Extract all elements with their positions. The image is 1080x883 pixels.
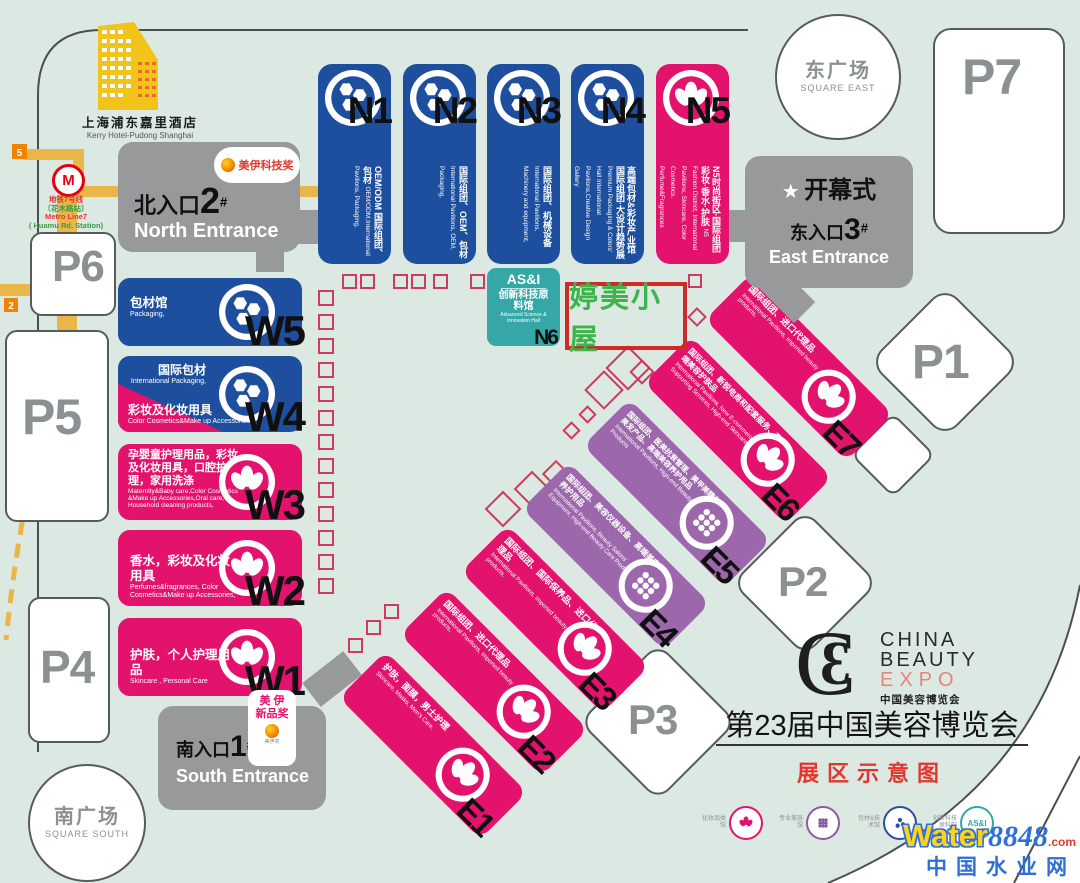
hall-w5-label: W5 [245, 310, 304, 352]
hall-n4-text: 高端包材&彩妆产业馆 国际组团·大设计趋势展 Premium Packaging… [570, 166, 636, 260]
tingmei-xiaowu-text: 婷美小屋 [569, 274, 683, 358]
expo-title: 第23届中国美容博览会 [716, 702, 1028, 744]
hall-n4-label: N4 [601, 92, 644, 129]
meiyi-tech-award-badge: 美伊科技奖 [214, 147, 300, 183]
metro-logo-letter: M [62, 172, 75, 189]
cbe-logo-wordmark: CHINA BEAUTY EXPO 中国美容博览会 [880, 630, 978, 710]
hall-n2-label: N2 [433, 92, 476, 129]
booth-marker [360, 274, 375, 289]
hall-w3: 孕婴童护理用品，彩妆及化妆用具，口腔护理，家用洗涤Maternity&Baby … [118, 444, 302, 520]
booth-marker [688, 274, 702, 288]
award-new-line1: 美 伊 [248, 695, 296, 708]
square-east-zh: 东广场 [777, 54, 899, 83]
hall-n2-text: 国际组团、OEM、包材 International Pavilions, OEM… [435, 166, 468, 260]
south-entrance-en: South Entrance [176, 766, 309, 787]
hall-w3-label: W3 [245, 484, 304, 526]
hall-n1-text: OEM/ODM 国际组团、包材 OEM/ODM,International Pa… [350, 166, 383, 260]
square-south: 南广场 SQUARE SOUTH [28, 764, 146, 882]
watermark-line2: 中国水业网 [903, 857, 1076, 879]
hall-n5: N5 N5时尚街区·国际组团 彩妆·香水·护肤 N5 Fashion Distr… [656, 64, 729, 264]
east-entrance-number: 3 [844, 213, 861, 246]
booth-marker [433, 274, 448, 289]
watermark-8848: 8848 [988, 820, 1048, 853]
category-cosmetics-label: 化妆品类馆 [700, 816, 726, 830]
svg-text:5: 5 [17, 148, 23, 159]
booth-marker [318, 338, 334, 354]
hall-n3-label: N3 [517, 92, 560, 129]
hall-n4: N4 高端包材&彩妆产业馆 国际组团·大设计趋势展 Premium Packag… [571, 64, 644, 264]
category-cosmetics: 化妆品类馆 [700, 806, 763, 840]
hall-w4: 国际包材International Packaging, 彩妆及化妆用具Colo… [118, 356, 302, 432]
booth-marker [342, 274, 357, 289]
title-divider [716, 744, 1028, 746]
booth-marker [318, 530, 334, 546]
map-subtitle: 展区示意图 [716, 756, 1028, 788]
booth-marker [393, 274, 408, 289]
meiyi-award-icon [265, 724, 279, 738]
north-entrance-hash: # [220, 195, 227, 210]
hall-n5-label: N5 [686, 92, 729, 129]
booth-marker [318, 578, 334, 594]
tingmei-xiaowu-highlight: 婷美小屋 [565, 282, 687, 350]
meiyi-new-product-award-badge: 美 伊 新品奖 美伊奖 [248, 690, 296, 766]
cbe-word-expo: EXPO [880, 670, 978, 690]
hall-w1: 护肤，个人护理用品Skincare , Personal Care W1 [118, 618, 302, 696]
opening-ceremony: ★ 开幕式 [745, 170, 913, 205]
east-entrance-zh: 东入口3# [745, 213, 913, 247]
dots-icon [806, 806, 840, 840]
watermark-line1: Water8848.com [903, 821, 1076, 857]
meiyi-tech-award-label: 美伊科技奖 [239, 157, 294, 173]
east-entrance-zh-text: 东入口 [790, 223, 844, 243]
south-entrance: 南入口1# South Entrance [158, 706, 326, 810]
cbe-word-beauty: BEAUTY [880, 650, 978, 670]
square-south-en: SQUARE SOUTH [30, 829, 144, 839]
watermark-water: Water [903, 818, 988, 853]
booth-marker [318, 506, 334, 522]
booth-marker [318, 434, 334, 450]
hall-n3-text: 国际组团、机械设备 International Pavilions, Machi… [519, 166, 552, 260]
category-professional-beauty: 专业美容馆 [777, 806, 840, 840]
parking-p2-label: P2 [778, 558, 827, 606]
square-east-en: SQUARE EAST [777, 83, 899, 93]
metro-station-en: ( Huamu Rd. Station) [22, 222, 110, 231]
hall-w2: 香水，彩妆及化妆用具Perfumes&fragrances, Color Cos… [118, 530, 302, 606]
expo-floorplan-map: 5 1 2 [0, 0, 1080, 883]
hall-n6-label: N6 [534, 327, 557, 348]
south-entrance-zh-text: 南入口 [176, 740, 230, 760]
booth-marker [318, 314, 334, 330]
booth-marker [348, 638, 363, 653]
asi-brand: AS&I [501, 268, 546, 289]
parking-p4-label: P4 [40, 640, 94, 694]
east-entrance-en: East Entrance [745, 247, 913, 268]
parking-p6-label: P6 [52, 242, 104, 292]
north-entrance-en: North Entrance [134, 220, 278, 243]
hall-w3-text: 孕婴童护理用品，彩妆及化妆用具，口腔护理，家用洗涤Maternity&Baby … [128, 449, 240, 509]
booth-marker [318, 410, 334, 426]
booth-marker [366, 620, 381, 635]
parking-p5-label: P5 [22, 388, 81, 446]
opening-ceremony-label: 开幕式 [804, 177, 876, 204]
square-east: 东广场 SQUARE EAST [775, 14, 901, 140]
hotel-name-en: Kerry Hotel-Pudong Shanghai [60, 131, 220, 140]
star-icon: ★ [782, 181, 800, 203]
north-entrance-zh: 北入口2# [134, 180, 227, 222]
flower-icon [729, 806, 763, 840]
shanghai-metro-icon: M [52, 164, 85, 197]
svg-text:2: 2 [8, 301, 14, 312]
cbe-logo-b: 3 [820, 621, 851, 707]
category-professional-label: 专业美容馆 [777, 816, 803, 830]
hall-w5: 包材馆Packaging, W5 [118, 278, 302, 346]
hall-n6-en: Advanced Science & Innovation Hall [496, 313, 552, 324]
hall-n5-text: N5时尚街区·国际组团 彩妆·香水·护肤 N5 Fashion District… [655, 166, 721, 260]
category-packaging-label: 包材&技术馆 [854, 816, 880, 830]
north-entrance-zh-text: 北入口 [134, 193, 200, 218]
cbe-word-china: CHINA [880, 630, 978, 650]
hall-w2-text: 香水，彩妆及化妆用具Perfumes&fragrances, Color Cos… [130, 554, 242, 600]
hall-n6-zh: 创新科技原料馆 [498, 290, 550, 312]
hall-w2-label: W2 [245, 570, 304, 612]
kerry-hotel-label: 上海浦东嘉里酒店 Kerry Hotel-Pudong Shanghai [60, 112, 220, 140]
booth-marker [318, 458, 334, 474]
parking-p1-label: P1 [912, 335, 969, 390]
meiyi-award-icon [221, 158, 235, 172]
hall-w4-text-top: 国际包材International Packaging, [131, 363, 206, 386]
award-new-line2: 新品奖 [248, 708, 296, 721]
booth-marker [318, 362, 334, 378]
booth-marker [318, 554, 334, 570]
hall-n1-label: N1 [348, 92, 391, 129]
booth-marker [318, 482, 334, 498]
hall-w4-label: W4 [245, 396, 304, 438]
south-entrance-zh: 南入口1# [176, 730, 254, 764]
booth-marker [384, 604, 399, 619]
award-new-tiny: 美伊奖 [248, 738, 296, 745]
booth-marker [411, 274, 426, 289]
hall-n1: N1 OEM/ODM 国际组团、包材 OEM/ODM,International… [318, 64, 391, 264]
kerry-hotel-icon [98, 22, 158, 110]
north-entrance-number: 2 [200, 180, 220, 221]
east-entrance-hash: # [861, 221, 868, 236]
hall-w1-text: 护肤，个人护理用品Skincare , Personal Care [130, 648, 242, 686]
booth-marker [318, 386, 334, 402]
square-south-zh: 南广场 [30, 800, 144, 829]
east-entrance: ★ 开幕式 东入口3# East Entrance [745, 156, 913, 288]
hotel-name-zh: 上海浦东嘉里酒店 [60, 112, 220, 131]
parking-p7-label: P7 [962, 48, 1021, 106]
booth-marker [318, 290, 334, 306]
metro-station-label: 地铁7号线 〔花木路站〕 Metro Line7 ( Huamu Rd. Sta… [22, 196, 110, 230]
water8848-watermark: Water8848.com 中国水业网 [903, 821, 1076, 879]
hall-n6: AS&I 创新科技原料馆 Advanced Science & Innovati… [487, 268, 560, 346]
south-entrance-number: 1 [230, 730, 247, 763]
hall-n3: N3 国际组团、机械设备 International Pavilions, Ma… [487, 64, 560, 264]
booth-marker [470, 274, 485, 289]
hall-n2: N2 国际组团、OEM、包材 International Pavilions, … [403, 64, 476, 264]
parking-p3-label: P3 [628, 696, 677, 744]
hall-w5-text: 包材馆Packaging, [130, 296, 168, 319]
watermark-com: .com [1048, 835, 1076, 849]
